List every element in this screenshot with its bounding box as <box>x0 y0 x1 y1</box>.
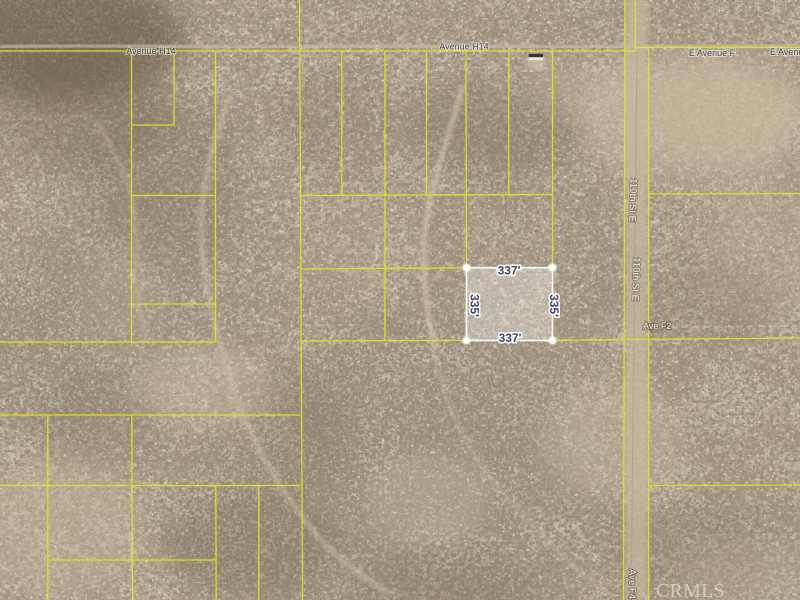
svg-text:E Avenue F: E Avenue F <box>770 47 800 57</box>
svg-text:CRMLS: CRMLS <box>656 580 725 600</box>
svg-text:337': 337' <box>498 264 521 278</box>
svg-text:Avenue H14: Avenue H14 <box>439 42 488 52</box>
svg-text:E Avenue F: E Avenue F <box>689 48 736 58</box>
svg-text:Avenue H14: Avenue H14 <box>126 46 175 56</box>
svg-text:335': 335' <box>547 294 561 317</box>
svg-text:Ave F2: Ave F2 <box>643 321 671 331</box>
svg-text:337': 337' <box>499 331 522 345</box>
svg-text:110th St E: 110th St E <box>626 178 639 222</box>
svg-text:Ave F4: Ave F4 <box>626 569 638 599</box>
svg-text:335': 335' <box>468 294 482 317</box>
svg-text:110th St E: 110th St E <box>629 257 642 301</box>
